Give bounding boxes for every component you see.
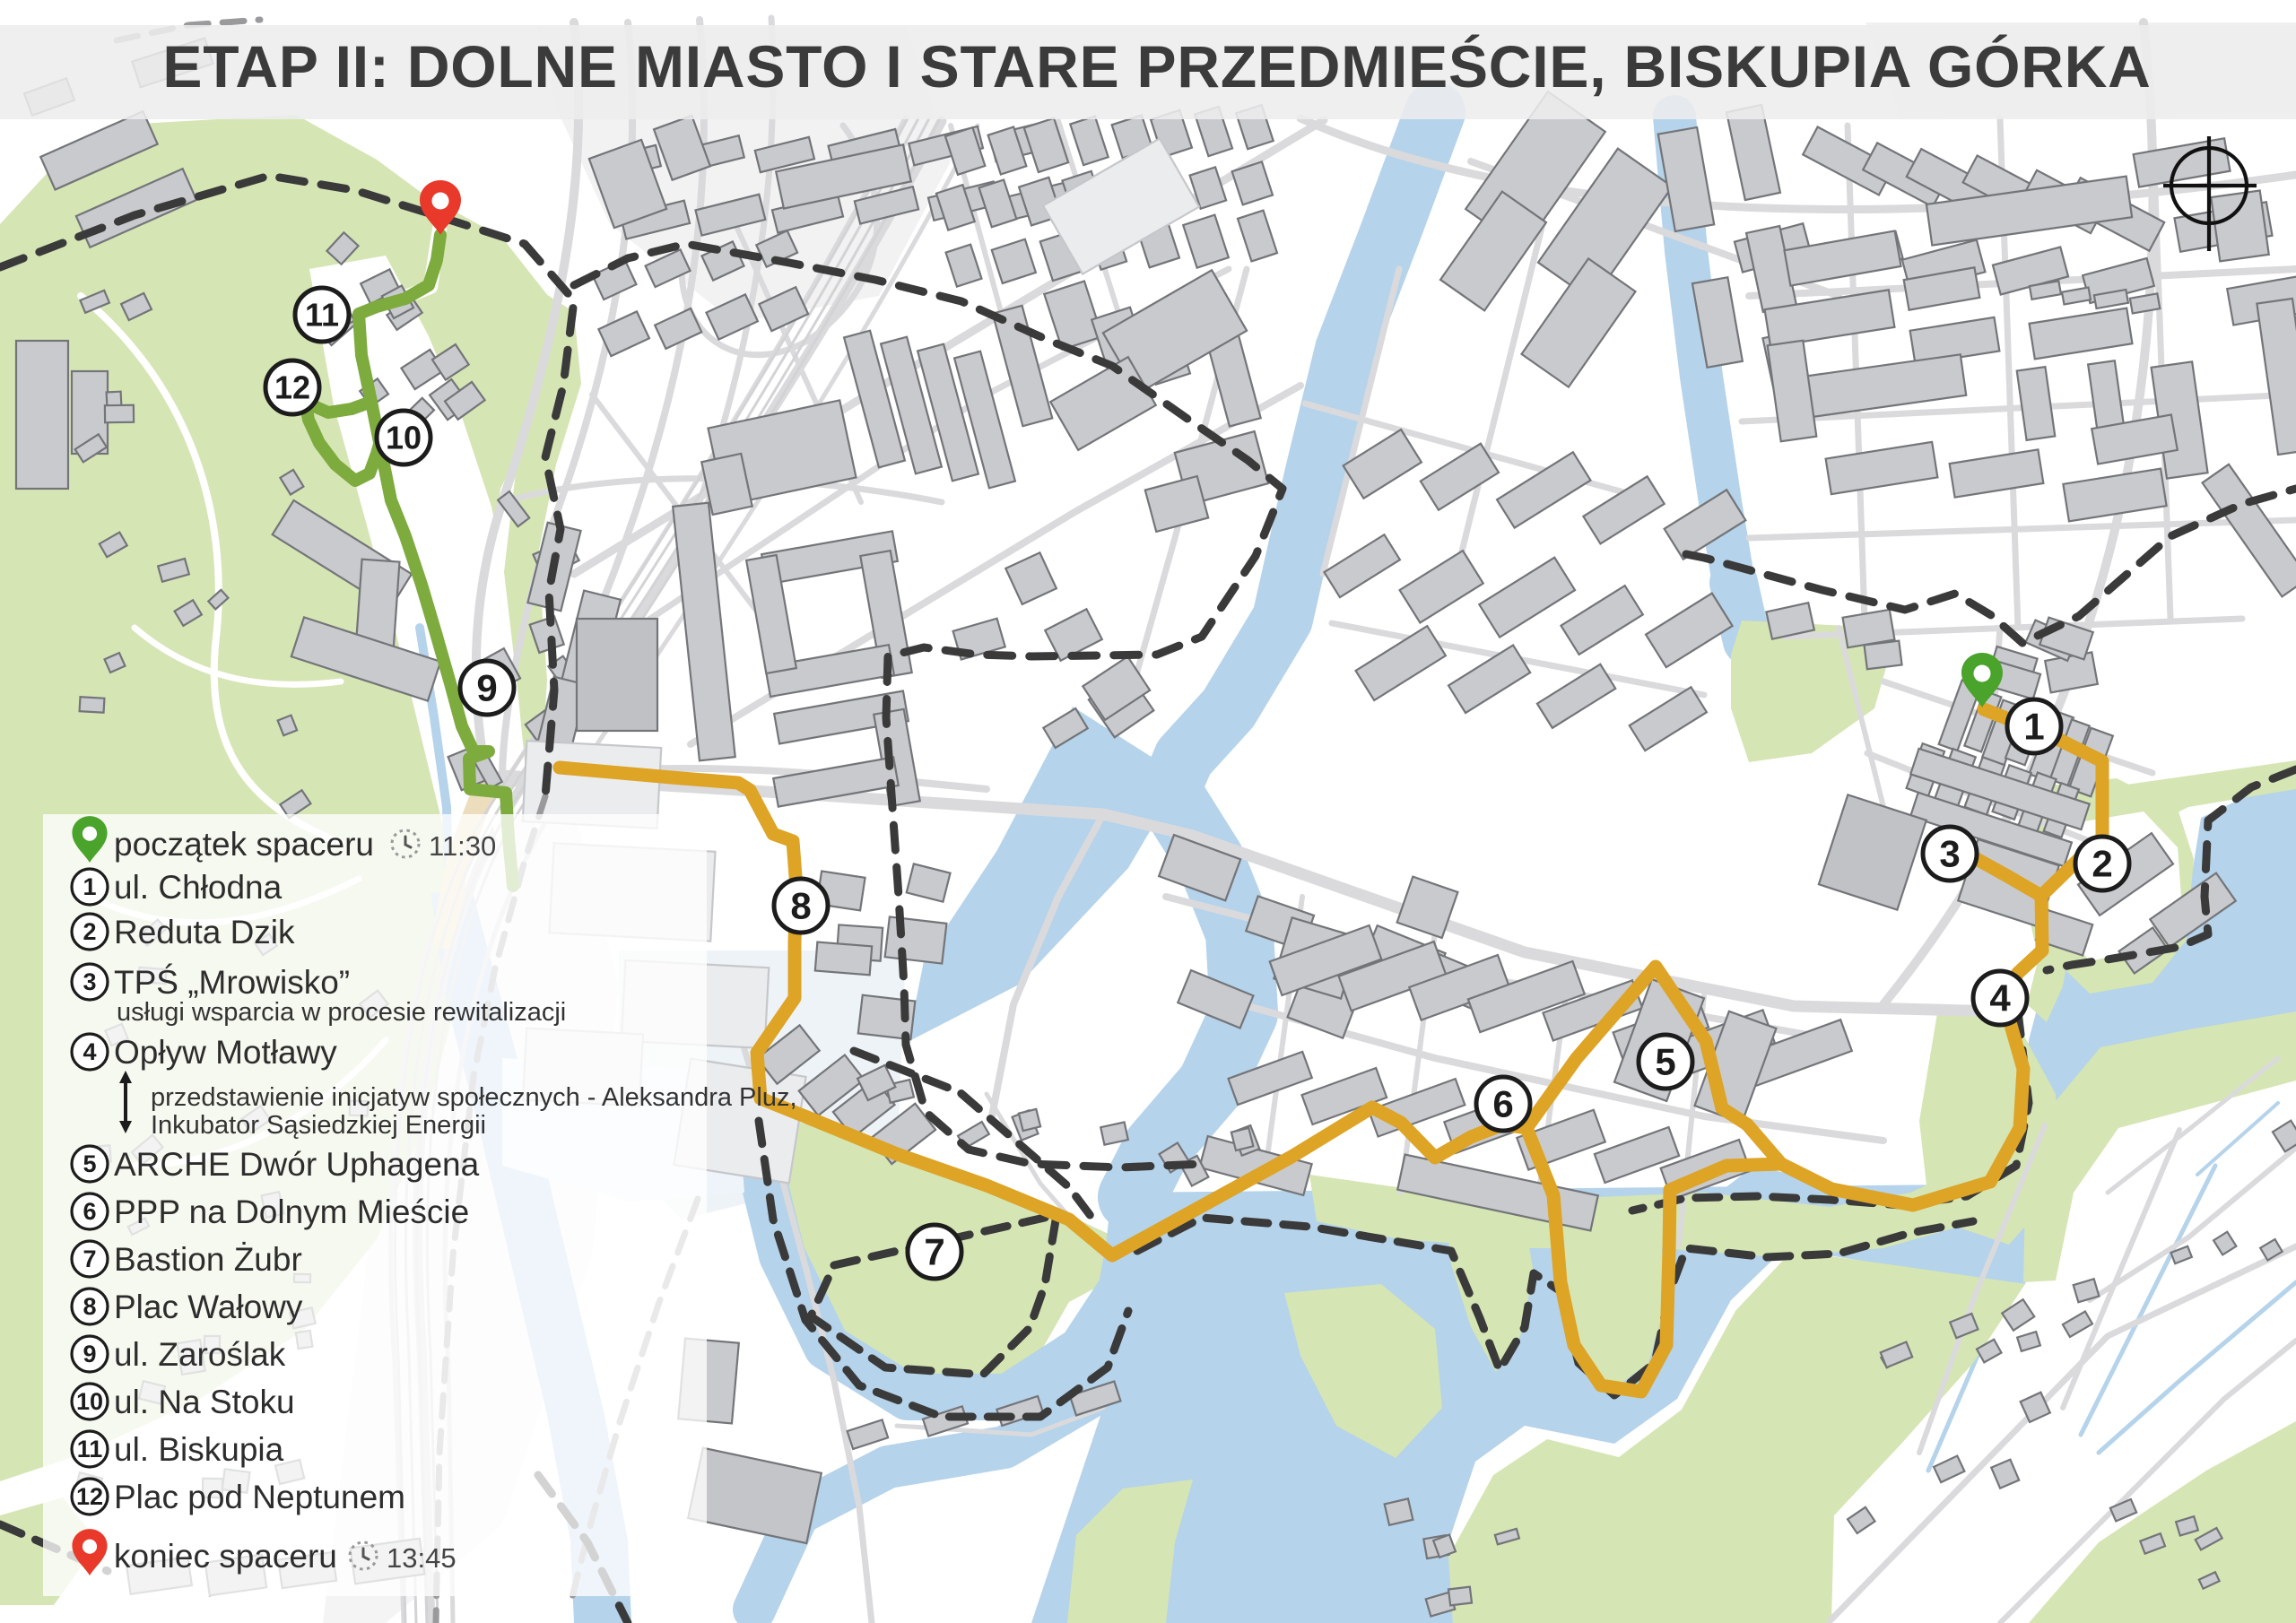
svg-text:1: 1	[83, 873, 96, 900]
svg-text:Reduta Dzik: Reduta Dzik	[114, 914, 295, 950]
svg-text:Plac Wałowy: Plac Wałowy	[114, 1289, 303, 1325]
svg-text:1: 1	[2023, 705, 2044, 747]
svg-text:13:45: 13:45	[387, 1542, 457, 1574]
svg-text:8: 8	[83, 1293, 96, 1320]
svg-text:11: 11	[305, 296, 339, 333]
svg-text:9: 9	[476, 666, 497, 708]
svg-text:koniec spaceru: koniec spaceru	[114, 1538, 337, 1575]
svg-text:ul. Biskupia: ul. Biskupia	[114, 1431, 284, 1468]
svg-text:11:30: 11:30	[429, 830, 496, 862]
svg-text:TPŚ „Mrowisko”: TPŚ „Mrowisko”	[114, 963, 350, 1001]
svg-text:początek spaceru: początek spaceru	[114, 826, 374, 863]
svg-text:ARCHE Dwór Uphagena: ARCHE Dwór Uphagena	[114, 1146, 480, 1183]
svg-text:10: 10	[76, 1388, 103, 1415]
svg-text:Inkubator Sąsiedzkiej Energii: Inkubator Sąsiedzkiej Energii	[151, 1111, 486, 1140]
svg-text:ETAP II: DOLNE MIASTO I STARE: ETAP II: DOLNE MIASTO I STARE PRZEDMIEŚC…	[162, 33, 2151, 100]
svg-text:2: 2	[83, 918, 96, 945]
svg-text:10: 10	[386, 419, 422, 456]
svg-text:6: 6	[1492, 1082, 1513, 1124]
svg-text:7: 7	[83, 1245, 96, 1272]
svg-text:ul. Na Stoku: ul. Na Stoku	[114, 1384, 295, 1420]
svg-text:5: 5	[1655, 1040, 1675, 1082]
svg-text:3: 3	[1939, 832, 1960, 874]
svg-text:Bastion Żubr: Bastion Żubr	[114, 1241, 302, 1278]
svg-text:usługi wsparcia w procesie rew: usługi wsparcia w procesie rewitalizacji	[117, 998, 566, 1027]
svg-text:12: 12	[76, 1483, 103, 1510]
svg-text:3: 3	[83, 968, 96, 995]
svg-text:Plac pod Neptunem: Plac pod Neptunem	[114, 1479, 405, 1515]
svg-text:4: 4	[83, 1038, 96, 1065]
svg-text:7: 7	[924, 1230, 944, 1272]
svg-text:11: 11	[77, 1436, 103, 1462]
svg-text:Opływ Motławy: Opływ Motławy	[114, 1034, 337, 1071]
svg-text:ul. Zaroślak: ul. Zaroślak	[114, 1336, 286, 1373]
svg-text:przedstawienie inicjatyw społe: przedstawienie inicjatyw społecznych - A…	[151, 1083, 797, 1112]
svg-text:9: 9	[83, 1341, 96, 1367]
svg-text:2: 2	[2092, 842, 2112, 884]
svg-text:12: 12	[274, 369, 310, 405]
svg-text:4: 4	[1989, 976, 2011, 1019]
svg-text:5: 5	[83, 1150, 96, 1177]
svg-text:6: 6	[83, 1198, 96, 1225]
svg-text:PPP na Dolnym Mieście: PPP na Dolnym Mieście	[114, 1193, 469, 1230]
svg-text:ul. Chłodna: ul. Chłodna	[114, 869, 283, 906]
svg-text:8: 8	[790, 884, 811, 926]
